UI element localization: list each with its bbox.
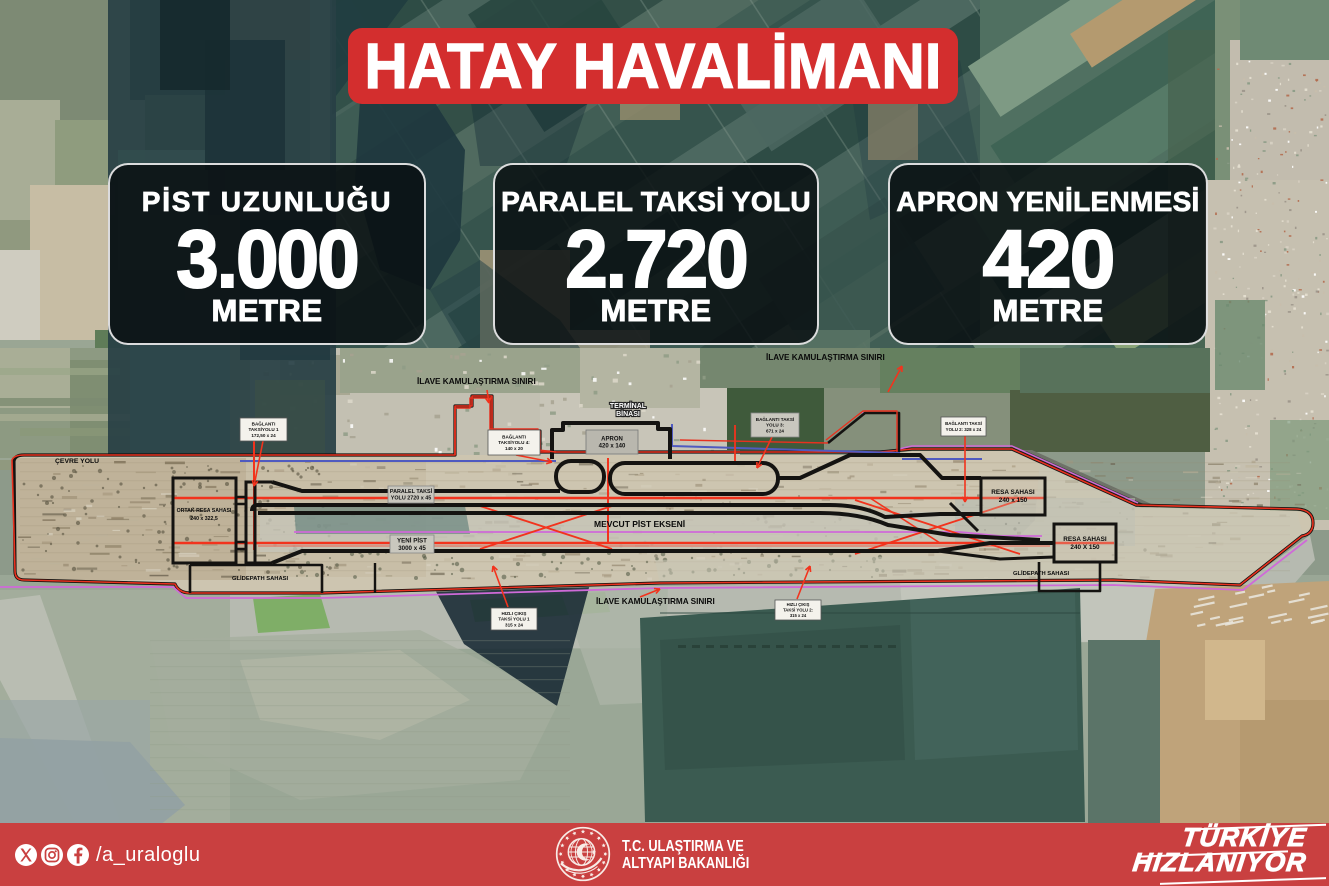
svg-text:BAĞLANTI: BAĞLANTI [502,432,526,439]
svg-text:TAKSİ YOLU 2:: TAKSİ YOLU 2: [783,608,813,613]
svg-text:HIZLI ÇIKIŞ: HIZLI ÇIKIŞ [787,602,810,607]
svg-text:671 x 24: 671 x 24 [766,428,784,433]
svg-text:GLİDEPATH SAHASI: GLİDEPATH SAHASI [1013,570,1070,577]
svg-text:MEVCUT PİST EKSENİ: MEVCUT PİST EKSENİ [594,519,685,529]
svg-text:ORTAK RESA SAHASI: ORTAK RESA SAHASI [177,508,232,514]
svg-text:BAĞLANTI: BAĞLANTI [252,419,276,426]
svg-text:HIZLI ÇIKIŞ: HIZLI ÇIKIŞ [501,611,526,616]
svg-text:BAĞLANTI TAKSİ: BAĞLANTI TAKSİ [756,415,794,422]
svg-text:BAĞLANTI TAKSİ: BAĞLANTI TAKSİ [945,421,982,426]
svg-text:APRON: APRON [601,437,623,443]
svg-text:3000 x 45: 3000 x 45 [398,545,426,552]
svg-text:TERMİNAL: TERMİNAL [610,402,647,410]
svg-text:YOLU 3:: YOLU 3: [766,423,785,428]
svg-text:GLİDEPATH SAHASI: GLİDEPATH SAHASI [232,575,289,582]
svg-text:TAKSİ YOLU 1: TAKSİ YOLU 1 [498,616,530,622]
svg-text:İLAVE KAMULAŞTIRMA SINIRI: İLAVE KAMULAŞTIRMA SINIRI [417,376,536,386]
svg-text:172,50 x 24: 172,50 x 24 [251,433,276,438]
svg-text:YENİ PİST: YENİ PİST [397,538,427,545]
svg-text:420 x 140: 420 x 140 [599,444,626,450]
svg-text:RESA SAHASI: RESA SAHASI [1063,536,1107,543]
svg-text:YOLU 2: 328 x 24: YOLU 2: 328 x 24 [946,427,982,432]
svg-text:PARALEL TAKSİ: PARALEL TAKSİ [390,488,433,495]
svg-text:240 x 150: 240 x 150 [999,497,1028,504]
svg-text:TAKSİYOLU 1: TAKSİYOLU 1 [248,426,278,432]
svg-text:İLAVE KAMULAŞTIRMA SINIRI: İLAVE KAMULAŞTIRMA SINIRI [766,352,885,362]
svg-text:RESA SAHASI: RESA SAHASI [991,489,1035,496]
svg-text:YOLU 2720 x 45: YOLU 2720 x 45 [391,496,431,502]
svg-text:240 x 322,5: 240 x 322,5 [190,516,218,522]
svg-text:315 x 24: 315 x 24 [790,613,807,618]
svg-text:140 x 20: 140 x 20 [505,446,523,451]
svg-text:BİNASI: BİNASI [616,410,640,418]
svg-text:İLAVE KAMULAŞTIRMA SINIRI: İLAVE KAMULAŞTIRMA SINIRI [596,596,715,606]
svg-text:TAKSİYOLU 4:: TAKSİYOLU 4: [498,439,530,445]
svg-text:ÇEVRE YOLU: ÇEVRE YOLU [55,458,99,465]
svg-text:315 x 24: 315 x 24 [505,622,523,627]
svg-text:240 X 150: 240 X 150 [1070,544,1100,551]
